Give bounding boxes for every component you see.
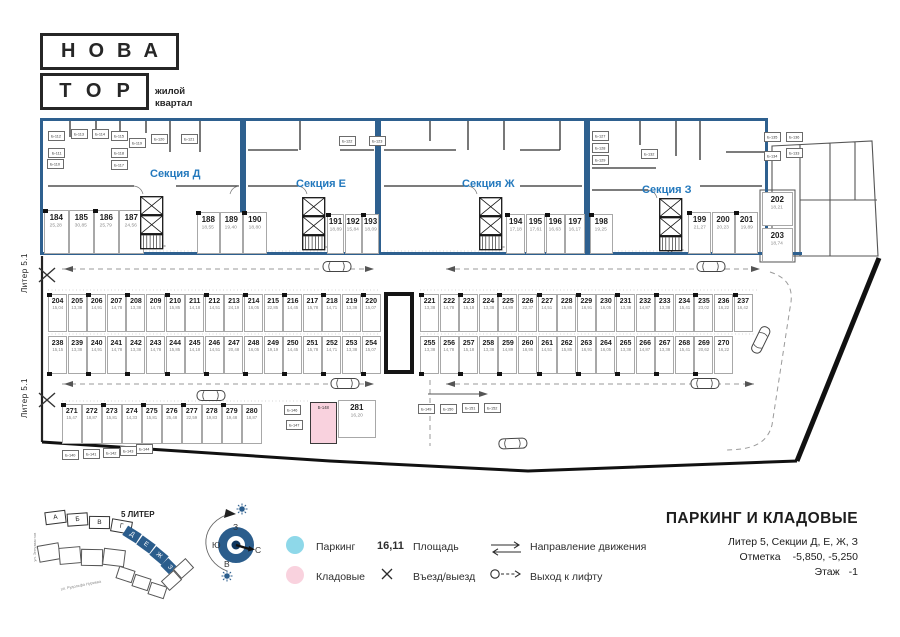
storage-unit-Б-135: Б-135 xyxy=(764,132,781,142)
parking-stall-223: 22315,18 xyxy=(459,294,478,332)
parking-stall-281: 28116,20 xyxy=(338,400,376,438)
central-shaft xyxy=(384,292,414,374)
parking-stall-189: 18919,40 xyxy=(220,212,243,254)
parking-stall-220: 22015,07 xyxy=(362,294,381,332)
parking-stall-245: 24514,18 xyxy=(185,336,204,374)
title-block: ПАРКИНГ И КЛАДОВЫЕ Литер 5, Секции Д, Е,… xyxy=(558,510,858,578)
storage-unit-Б-113: Б-113 xyxy=(71,129,88,139)
storage-unit-Б-136: Б-136 xyxy=(786,132,803,142)
parking-stall-185: 18530,85 xyxy=(69,210,94,254)
parking-stall-250: 25014,45 xyxy=(283,336,302,374)
parking-stall-222: 22214,78 xyxy=(440,294,459,332)
parking-stall-240: 24014,91 xyxy=(87,336,106,374)
parking-stall-191: 19118,89 xyxy=(327,214,344,254)
storage-swatch xyxy=(286,566,304,584)
parking-stall-208: 20813,38 xyxy=(126,294,145,332)
storage-unit-Б-151: Б-151 xyxy=(462,403,479,413)
parking-stall-233: 23313,38 xyxy=(655,294,674,332)
parking-stall-256: 25614,78 xyxy=(440,336,459,374)
storage-unit-Б-129: Б-129 xyxy=(592,155,609,165)
storage-unit-Б-123: Б-123 xyxy=(369,136,386,146)
compass-south: Ю xyxy=(212,540,221,550)
parking-stall-203: 20318,74 xyxy=(762,228,793,262)
parking-stall-215: 21522,85 xyxy=(264,294,283,332)
parking-stall-261: 26114,51 xyxy=(538,336,557,374)
parking-stall-224: 22413,38 xyxy=(479,294,498,332)
car-icon xyxy=(696,260,726,278)
parking-stall-242: 24213,38 xyxy=(126,336,145,374)
direction-icon xyxy=(488,540,524,557)
entry-exit-icon xyxy=(380,567,394,581)
car-icon xyxy=(498,436,529,455)
parking-stall-209: 20914,78 xyxy=(146,294,165,332)
parking-stall-216: 21614,45 xyxy=(283,294,302,332)
parking-stall-280: 28018,87 xyxy=(242,404,262,444)
storage-unit-Б-115: Б-115 xyxy=(111,131,128,141)
parking-stall-202: 20218,21 xyxy=(762,192,793,226)
storage-unit-Б-140: Б-140 xyxy=(62,450,79,460)
storage-unit-b148-highlighted: Б-148 xyxy=(310,402,337,444)
parking-stall-275: 27515,81 xyxy=(142,404,162,444)
parking-stall-248: 24816,05 xyxy=(244,336,263,374)
elevation-line: Отметка-5,850, -5,250 xyxy=(558,551,858,563)
parking-stall-271: 27115,47 xyxy=(62,404,82,444)
parking-stall-260: 26018,95 xyxy=(518,336,537,374)
parking-stall-255: 25513,38 xyxy=(420,336,439,374)
storage-unit-Б-122: Б-122 xyxy=(339,136,356,146)
liter-edge-label: Литер 5.1 xyxy=(20,253,29,293)
site-map-block-А: А xyxy=(44,510,66,525)
compass-rose: З Ю С В xyxy=(193,503,288,608)
parking-stall-230: 23016,05 xyxy=(596,294,615,332)
storage-unit-Б-132: Б-132 xyxy=(641,149,658,159)
parking-stall-218: 21814,71 xyxy=(322,294,341,332)
storage-unit-Б-110: Б-110 xyxy=(47,159,64,169)
parking-stall-263: 26316,91 xyxy=(577,336,596,374)
parking-stall-269: 26920,62 xyxy=(694,336,713,374)
parking-stall-252: 25214,71 xyxy=(322,336,341,374)
parking-stall-198: 19819,25 xyxy=(590,214,613,254)
compass-east: В xyxy=(224,559,230,569)
parking-stall-239: 23913,38 xyxy=(68,336,87,374)
parking-stall-204: 20415,04 xyxy=(48,294,67,332)
parking-stall-206: 20614,91 xyxy=(87,294,106,332)
parking-stall-184: 18425,28 xyxy=(44,210,69,254)
storage-unit-Б-127: Б-127 xyxy=(592,131,609,141)
storage-unit-Б-134: Б-134 xyxy=(764,151,781,161)
site-map-neighbor-block xyxy=(81,549,103,566)
parking-stall-229: 22916,91 xyxy=(577,294,596,332)
parking-stall-254: 25415,07 xyxy=(362,336,381,374)
car-icon xyxy=(322,260,352,278)
parking-stall-221: 22113,38 xyxy=(420,294,439,332)
parking-stall-236: 23616,22 xyxy=(714,294,733,332)
sheet-subtitle: Литер 5, Секции Д, Е, Ж, З xyxy=(558,536,858,548)
parking-stall-227: 22714,51 xyxy=(538,294,557,332)
parking-stall-258: 25813,38 xyxy=(479,336,498,374)
parking-stall-200: 20020,23 xyxy=(712,212,735,254)
parking-stall-267: 26713,38 xyxy=(655,336,674,374)
parking-stall-277: 27722,59 xyxy=(182,404,202,444)
parking-stall-196: 19616,63 xyxy=(546,214,565,254)
parking-stall-266: 26614,87 xyxy=(636,336,655,374)
liter-edge-label: Литер 5.1 xyxy=(20,378,29,418)
car-icon xyxy=(690,377,720,395)
site-map-block-Б: Б xyxy=(67,512,89,526)
parking-stall-246: 24614,51 xyxy=(205,336,224,374)
parking-stall-190: 19018,80 xyxy=(243,212,267,254)
legend-entry-label: Въезд/выезд xyxy=(413,571,475,583)
parking-stall-279: 27919,48 xyxy=(222,404,242,444)
storage-unit-Б-119: Б-119 xyxy=(129,138,146,148)
storage-unit-Б-152: Б-152 xyxy=(484,403,501,413)
parking-stall-265: 26513,38 xyxy=(616,336,635,374)
parking-stall-278: 27819,83 xyxy=(202,404,222,444)
storage-unit-Б-149: Б-149 xyxy=(418,404,435,414)
parking-stall-228: 22815,85 xyxy=(557,294,576,332)
site-map-neighbor-block xyxy=(37,542,62,563)
storage-unit-Б-133: Б-133 xyxy=(786,148,803,158)
parking-swatch xyxy=(286,536,304,554)
parking-stall-235: 23523,02 xyxy=(694,294,713,332)
sun-icon xyxy=(222,571,233,582)
storage-unit-Б-142: Б-142 xyxy=(103,448,120,458)
parking-stall-276: 27625,48 xyxy=(162,404,182,444)
parking-stall-213: 21324,19 xyxy=(224,294,243,332)
parking-stall-234: 23415,41 xyxy=(675,294,694,332)
parking-stall-193: 19318,09 xyxy=(362,214,379,254)
elevator-core-icon xyxy=(302,197,327,253)
parking-stall-192: 19215,84 xyxy=(345,214,362,254)
parking-stall-207: 20714,78 xyxy=(107,294,126,332)
site-key-map: 5 ЛИТЕР ул. Энтузиастов ул. Рудольфа Нур… xyxy=(25,500,200,625)
parking-stall-243: 24314,78 xyxy=(146,336,165,374)
storage-unit-Б-121: Б-121 xyxy=(181,134,198,144)
storage-unit-Б-112: Б-112 xyxy=(48,131,65,141)
parking-stall-210: 21015,85 xyxy=(166,294,185,332)
parking-stall-237: 23716,42 xyxy=(734,294,753,332)
site-map-block-В: В xyxy=(89,516,110,529)
storage-unit-Б-146: Б-146 xyxy=(284,405,301,415)
parking-stall-247: 24720,48 xyxy=(224,336,243,374)
parking-stall-225: 22514,89 xyxy=(498,294,517,332)
parking-stall-257: 25715,18 xyxy=(459,336,478,374)
parking-stall-274: 27414,33 xyxy=(122,404,142,444)
car-icon xyxy=(330,377,360,395)
parking-stall-251: 25115,78 xyxy=(303,336,322,374)
compass-north: С xyxy=(255,545,261,555)
legend-parking-label: Паркинг xyxy=(316,541,355,553)
parking-stall-214: 21416,05 xyxy=(244,294,263,332)
legend-area-label: Площадь xyxy=(413,541,459,553)
parking-stall-195: 19517,61 xyxy=(526,214,545,254)
car-icon xyxy=(196,389,226,407)
parking-stall-199: 19921,27 xyxy=(688,212,711,254)
parking-stall-186: 18625,79 xyxy=(94,210,119,254)
elevator-core-icon xyxy=(659,198,684,254)
parking-stall-241: 24114,78 xyxy=(107,336,126,374)
storage-unit-Б-141: Б-141 xyxy=(83,449,100,459)
car-icon xyxy=(748,324,777,359)
storage-unit-Б-143: Б-143 xyxy=(120,446,137,456)
compass-west: З xyxy=(233,522,238,532)
parking-stall-211: 21114,18 xyxy=(185,294,204,332)
parking-stall-194: 19417,18 xyxy=(506,214,525,254)
parking-stall-188: 18818,55 xyxy=(197,212,220,254)
parking-stall-273: 27315,81 xyxy=(102,404,122,444)
parking-stall-249: 24919,19 xyxy=(264,336,283,374)
storage-unit-Б-150: Б-150 xyxy=(440,404,457,414)
site-map-neighbor-block xyxy=(102,548,126,568)
sun-path-arrow xyxy=(224,509,236,518)
storage-unit-Б-114: Б-114 xyxy=(92,129,109,139)
elevator-core-icon xyxy=(140,196,165,252)
lift-exit-icon xyxy=(488,566,524,583)
parking-stall-217: 21715,78 xyxy=(303,294,322,332)
sheet-title: ПАРКИНГ И КЛАДОВЫЕ xyxy=(558,510,858,528)
parking-stall-201: 20119,89 xyxy=(735,212,758,254)
storage-unit-Б-128: Б-128 xyxy=(592,143,609,153)
legend-storage-label: Кладовые xyxy=(316,571,365,583)
parking-stall-238: 23815,15 xyxy=(48,336,67,374)
storage-unit-Б-111: Б-111 xyxy=(48,148,65,158)
parking-plan-sheet: НОВА ТОР жилойквартал xyxy=(0,0,900,637)
storage-unit-Б-144: Б-144 xyxy=(136,444,153,454)
parking-stall-253: 25313,38 xyxy=(342,336,361,374)
parking-stall-244: 24415,85 xyxy=(166,336,185,374)
parking-stall-226: 22622,37 xyxy=(518,294,537,332)
parking-stall-259: 25914,89 xyxy=(498,336,517,374)
parking-stall-262: 26215,85 xyxy=(557,336,576,374)
floor-line: Этаж-1 xyxy=(558,566,858,578)
site-map-neighbor-block xyxy=(58,546,81,565)
storage-unit-Б-118: Б-118 xyxy=(111,148,128,158)
parking-stall-231: 23113,38 xyxy=(616,294,635,332)
parking-stall-272: 27218,87 xyxy=(82,404,102,444)
parking-stall-205: 20513,38 xyxy=(68,294,87,332)
storage-unit-Б-117: Б-117 xyxy=(111,160,128,170)
parking-stall-232: 23214,87 xyxy=(636,294,655,332)
storage-unit-Б-147: Б-147 xyxy=(286,420,303,430)
sun-icon xyxy=(237,504,248,515)
street-label: ул. Рудольфа Нуриева xyxy=(61,580,102,592)
floor-plan: Секция Д Секция Е Секция Ж Секция З 1842… xyxy=(0,0,900,500)
parking-stall-212: 21214,51 xyxy=(205,294,224,332)
parking-stall-270: 27016,22 xyxy=(714,336,733,374)
storage-unit-Б-120: Б-120 xyxy=(151,134,168,144)
parking-stall-197: 19716,17 xyxy=(565,214,584,254)
parking-stall-264: 26416,05 xyxy=(596,336,615,374)
elevator-core-icon xyxy=(479,197,504,253)
parking-stall-268: 26815,41 xyxy=(675,336,694,374)
site-map-title: 5 ЛИТЕР xyxy=(121,510,155,519)
parking-stall-219: 21913,38 xyxy=(342,294,361,332)
legend-area-example: 16,11 xyxy=(377,540,404,552)
